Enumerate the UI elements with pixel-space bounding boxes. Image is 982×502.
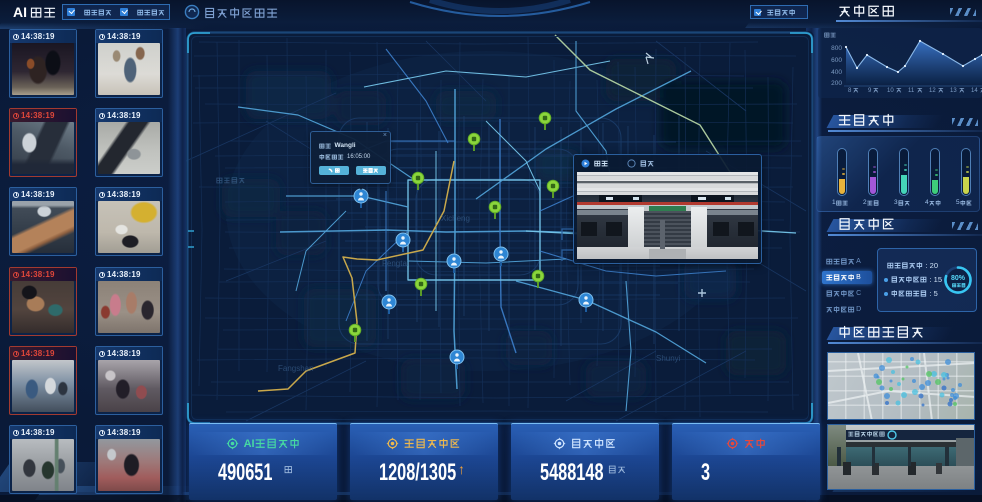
svg-text:12: 12 bbox=[929, 88, 936, 94]
svg-text:200: 200 bbox=[831, 80, 842, 87]
svg-text:13: 13 bbox=[950, 88, 957, 94]
svg-text:400: 400 bbox=[831, 69, 842, 76]
svg-text:10: 10 bbox=[887, 88, 894, 94]
svg-text:600: 600 bbox=[831, 57, 842, 64]
svg-text:800: 800 bbox=[831, 45, 842, 52]
svg-text:14: 14 bbox=[971, 88, 978, 94]
svg-text:11: 11 bbox=[908, 88, 915, 94]
svg-text:80%: 80% bbox=[951, 275, 966, 282]
